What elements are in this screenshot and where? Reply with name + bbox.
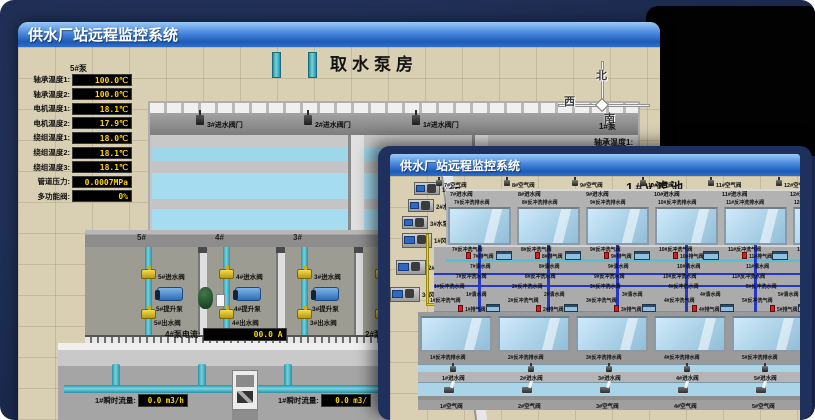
lift-pump-icon[interactable] (235, 287, 261, 301)
measurement-value: 18.0℃ (72, 132, 132, 144)
air-valve-icon[interactable] (504, 180, 510, 186)
filter-pool-top (586, 207, 649, 245)
intake-valve[interactable]: 1#进水阀门 (410, 117, 480, 137)
exhaust-valve-icon[interactable] (604, 252, 609, 259)
air-valve-icon[interactable] (444, 385, 456, 393)
clean-water-tank-icon (486, 304, 500, 312)
measurement-label: 绕组温度1: (22, 132, 70, 143)
air-valve-icon[interactable] (572, 180, 578, 186)
backwash-yellow-pipe-vertical (426, 234, 429, 306)
air-valve-label: 3#空气阀 (596, 402, 619, 410)
exhaust-valve-label: 11#排气阀 (749, 253, 772, 260)
air-valve-label: 9#空气阀 (580, 181, 603, 189)
measurement-value: 0.0007MPa (72, 176, 132, 188)
filter-pool-top (517, 207, 580, 245)
pump-current-readout: 4#泵电流: 00.0 A (165, 328, 287, 341)
pump-motor-icon (410, 202, 419, 209)
inlet-valve-label: 11#进水阀 (722, 190, 747, 198)
measurement-label: 绕组温度2: (22, 147, 70, 158)
clean-water-valve-label: 8#清水阀 (539, 263, 560, 270)
filter-pool-top (448, 207, 511, 245)
exhaust-valve-icon[interactable] (614, 305, 619, 312)
clean-water-valve-label: 5#清水阀 (778, 291, 799, 298)
inlet-valve-icon[interactable] (528, 366, 534, 372)
clean-water-tank-icon (642, 304, 656, 312)
intake-valve-label: 3#进水阀门 (207, 120, 243, 130)
exhaust-valve-icon[interactable] (770, 305, 775, 312)
backwash-water-valve-label: 8#反冲洗水阀 (525, 273, 556, 280)
pump5-panel-row: 多功能阀: 0% (22, 190, 134, 203)
exhaust-valve-label: 7#排气阀 (473, 253, 494, 260)
tank-icon[interactable] (198, 287, 213, 309)
flow-readout: 1#瞬时流量: 0.0 m3/ (278, 394, 371, 407)
drain-valve-label: 10#反冲洗排水阀 (658, 199, 696, 206)
pump-head-icon (427, 184, 436, 193)
filter-pool-bottom (654, 316, 726, 352)
measurement-value: 100.0℃ (72, 74, 132, 86)
pump-head-icon (421, 201, 430, 210)
front-window-inner: 供水厂站远程监控系统 1#V滤池 1#水泵 (390, 154, 800, 420)
clean-water-tank-icon (703, 251, 719, 260)
air-valve-icon[interactable] (708, 180, 714, 186)
filter-pool-bottom (420, 316, 492, 352)
exhaust-valve-icon[interactable] (742, 252, 747, 259)
inlet-valve-icon[interactable] (219, 269, 234, 279)
outlet-main-pipe (64, 385, 394, 393)
blower-motor-icon (404, 236, 415, 244)
outlet-valve-label: 5#出水阀 (154, 317, 181, 327)
outlet-valve-label: 3#出水阀 (310, 317, 337, 327)
backwash-water-valve-label: 5#反冲洗水阀 (746, 283, 777, 290)
pump5-panel-row: 电机温度1: 18.1℃ (22, 102, 134, 115)
measurement-value: 18.1℃ (72, 147, 132, 159)
drain-valve-label: 3#反冲洗排水阀 (586, 354, 622, 361)
flow-value: 0.0 m3/h (138, 394, 188, 407)
inlet-valve-label: 3#进水阀 (314, 271, 341, 281)
measurement-label: 绕组温度3: (22, 162, 70, 173)
pump-bay: 3#进水阀 3#提升泵 3#出水阀 (285, 247, 363, 335)
filter-pool-top (724, 207, 787, 245)
pump5-panel-row: 绕组温度3: 18.1℃ (22, 161, 134, 174)
intake-valve-label: 2#进水阀门 (315, 120, 351, 130)
inlet-valve-label: 7#进水阀 (450, 190, 473, 198)
riser-pipe (272, 52, 281, 78)
pump5-panel-row: 电机温度2: 17.9℃ (22, 117, 134, 130)
intake-valve-label: 1#进水阀门 (423, 120, 459, 130)
flow-label: 1#瞬时流量: (278, 395, 319, 406)
clean-water-valve-label: 7#清水阀 (470, 263, 491, 270)
clean-water-valve-label: 3#清水阀 (622, 291, 643, 298)
backwash-water-valve-label: 9#反冲洗水阀 (594, 273, 625, 280)
clean-water-valve-label: 10#清水阀 (677, 263, 700, 270)
backwash-water-valve-label: 10#反冲洗水阀 (663, 273, 696, 280)
drain-valve-label: 4#反冲洗排水阀 (664, 354, 700, 361)
air-valve-label: 5#空气阀 (752, 402, 775, 410)
measurement-label: 轴承温度2: (22, 89, 70, 100)
measurement-value: 18.1℃ (72, 103, 132, 115)
backwash-air-valve-label: 12#反冲洗气阀 (797, 246, 800, 253)
clean-water-tank-icon (564, 304, 578, 312)
front-window-titlebar[interactable]: 供水厂站远程监控系统 (390, 154, 800, 176)
air-valve-label: 4#空气阀 (674, 402, 697, 410)
clean-water-tank-icon (798, 304, 800, 312)
backwash-air-valve-label: 5#反冲洗气阀 (742, 297, 773, 304)
drain-valve-label: 8#反冲洗排水阀 (522, 199, 558, 206)
backwash-water-valve-label: 11#反冲洗水阀 (732, 273, 765, 280)
riser-pipe (308, 52, 317, 78)
inlet-valve-icon[interactable] (297, 269, 312, 279)
measurement-value: 17.9℃ (72, 117, 132, 129)
flow-meter[interactable] (232, 370, 258, 410)
air-valve-label: 8#空气阀 (512, 181, 535, 189)
filter-pool-top (793, 207, 800, 245)
room-title: 取水泵房 (330, 50, 418, 75)
measurement-label: 多功能阀: (22, 191, 70, 202)
bay-divider-wall (354, 247, 363, 335)
clean-water-valve-label: 1#清水阀 (466, 291, 487, 298)
exhaust-valve-icon[interactable] (673, 252, 678, 259)
outlet-valve-label: 4#出水阀 (232, 317, 259, 327)
measurement-label: 电机温度2: (22, 118, 70, 129)
intake-valve[interactable]: 3#进水阀门 (194, 117, 264, 137)
inlet-valve-icon[interactable] (762, 366, 768, 372)
exhaust-valve-icon[interactable] (466, 252, 471, 259)
exhaust-valve-icon[interactable] (536, 305, 541, 312)
exhaust-valve-icon[interactable] (692, 305, 697, 312)
air-valve-label: 7#空气阀 (444, 181, 467, 189)
drain-valve-label: 1#反冲洗排水阀 (430, 354, 466, 361)
bay-divider-wall (276, 247, 285, 335)
measurement-label: 管道压力: (22, 176, 70, 187)
inlet-valve-label: 9#进水阀 (586, 190, 609, 198)
backwash-air-valve-label: 4#反冲洗气阀 (664, 297, 695, 304)
backwash-air-valve-label: 2#反冲洗气阀 (508, 297, 539, 304)
clean-water-tank-icon (634, 251, 650, 260)
blower-head-icon (411, 262, 420, 271)
inlet-valve-icon[interactable] (606, 366, 612, 372)
blower-motor-icon (392, 290, 403, 298)
air-valve-label: 1#空气阀 (440, 402, 463, 410)
valve-icon[interactable] (304, 115, 312, 125)
pump5-panel-row: 轴承温度2: 100.0℃ (22, 88, 134, 101)
front-window-content: 1#V滤池 1#水泵 (390, 176, 800, 420)
pump5-panel-row: 管道压力: 0.0007MPa (22, 175, 134, 188)
lift-pump-label: 3#提升泵 (312, 303, 339, 313)
measurement-value: 0% (72, 190, 132, 202)
bay-pipe (223, 247, 230, 335)
backwash-water-valve-label: 3#反冲洗水阀 (590, 283, 621, 290)
inlet-valve-icon[interactable] (141, 269, 156, 279)
drain-valve-label: 2#反冲洗排水阀 (508, 354, 544, 361)
inlet-valve-label: 10#进水阀 (654, 190, 680, 198)
backwash-water-valve-label: 2#反冲洗水阀 (512, 283, 543, 290)
compass-north: 北 (596, 67, 607, 83)
pump-current-label: 4#泵电流: (165, 329, 201, 340)
bay-number: 3# (293, 233, 302, 242)
clean-water-valve-label: 11#清水阀 (746, 263, 769, 270)
backwash-air-valve-label: 1#反冲洗气阀 (430, 297, 461, 304)
pump-head-icon (415, 218, 424, 227)
measurement-label: 电机温度1: (22, 103, 70, 114)
front-window-title: 供水厂站远程监控系统 (400, 157, 520, 174)
backwash-water-valve-label: 4#反冲洗水阀 (668, 283, 699, 290)
flow-label: 1#瞬时流量: (95, 395, 136, 406)
pump1-panel-header: 1#泵 (599, 121, 616, 132)
flow-readout: 1#瞬时流量: 0.0 m3/h (95, 394, 188, 407)
inlet-valve-label: 4#进水阀 (236, 271, 263, 281)
blower-motor-icon (398, 263, 409, 271)
drain-valve-label: 5#反冲洗排水阀 (742, 354, 778, 361)
exhaust-valve-label: 9#排气阀 (611, 253, 632, 260)
intake-valve[interactable]: 2#进水阀门 (302, 117, 372, 137)
inlet-valve-label: 5#进水阀 (158, 271, 185, 281)
valve-icon[interactable] (196, 115, 204, 125)
filter-pool-bottom (498, 316, 570, 352)
inlet-valve-label: 12#进水阀 (790, 190, 800, 198)
clean-water-tank-icon (772, 251, 788, 260)
scada-desktop: 供水厂站远程监控系统 取水泵房 (0, 0, 815, 420)
exhaust-valve-label: 8#排气阀 (542, 253, 563, 260)
background-panel (646, 6, 815, 156)
filter-pool-top (655, 207, 718, 245)
drain-valve-label: 9#反冲洗排水阀 (590, 199, 626, 206)
backwash-water-valve-label: 7#反冲洗水阀 (456, 273, 487, 280)
air-valve-icon[interactable] (756, 385, 768, 393)
back-window-title: 供水厂站远程监控系统 (28, 24, 178, 45)
lift-pump-icon[interactable] (157, 287, 183, 301)
compass-west: 西 (564, 93, 575, 109)
measurement-value: 18.1℃ (72, 161, 132, 173)
lift-pump-label: 4#提升泵 (234, 303, 261, 313)
air-valve-icon[interactable] (776, 180, 782, 186)
valve-icon[interactable] (412, 115, 420, 125)
air-valve-icon[interactable] (678, 385, 690, 393)
pump-motor-icon (404, 219, 413, 226)
pump-bay: 5#进水阀 5#提升泵 5#出水阀 (129, 247, 207, 335)
exhaust-valve-label: 10#排气阀 (680, 253, 703, 260)
drain-valve-label: 12#反冲洗排水阀 (794, 199, 800, 206)
inlet-valve-icon[interactable] (450, 366, 456, 372)
air-valve-label: 2#空气阀 (518, 402, 541, 410)
blower-head-icon (405, 289, 414, 298)
air-valve-label: 11#空气阀 (716, 181, 741, 189)
inlet-valve-label: 8#进水阀 (518, 190, 541, 198)
backwash-air-valve-label: 3#反冲洗气阀 (586, 297, 617, 304)
air-valve-label: 12#空气阀 (784, 181, 800, 189)
bay-number: 5# (137, 233, 146, 242)
air-valve-icon[interactable] (600, 385, 612, 393)
pump5-panel-row: 绕组温度2: 18.1℃ (22, 146, 134, 159)
clean-water-valve-label: 2#清水阀 (544, 291, 565, 298)
flow-meter-base (232, 410, 258, 420)
pump-room-back-wall (85, 230, 399, 247)
exhaust-valve-icon[interactable] (458, 305, 463, 312)
clean-water-tank-icon (496, 251, 512, 260)
inlet-valve-icon[interactable] (684, 366, 690, 372)
backwash-water-valve-label: 1#反冲洗水阀 (434, 283, 465, 290)
pump-motor-icon (416, 185, 425, 192)
measurement-value: 100.0℃ (72, 88, 132, 100)
pump5-panel-row: 轴承温度1: 100.0℃ (22, 73, 134, 86)
pump5-panel-row: 绕组温度1: 18.0℃ (22, 131, 134, 144)
measurement-label: 轴承温度1: (22, 74, 70, 85)
air-valve-label: 10#空气阀 (648, 181, 674, 189)
air-valve-icon[interactable] (522, 385, 534, 393)
pump-bay: 4#进水阀 4#提升泵 4#出水阀 (207, 247, 285, 335)
exhaust-valve-icon[interactable] (535, 252, 540, 259)
back-window-titlebar[interactable]: 供水厂站远程监控系统 (18, 22, 660, 47)
lift-pump-label: 5#提升泵 (156, 303, 183, 313)
filter-pool-bottom (576, 316, 648, 352)
bay-pipe (301, 247, 308, 335)
bay-number: 4# (215, 233, 224, 242)
clean-water-valve-label: 4#清水阀 (700, 291, 721, 298)
clean-water-tank-icon (720, 304, 734, 312)
control-box-icon[interactable] (216, 294, 225, 307)
drain-valve-label: 7#反冲洗排水阀 (454, 199, 490, 206)
front-window-filter-pool: 供水厂站远程监控系统 1#V滤池 1#水泵 (378, 146, 812, 420)
lift-pump-icon[interactable] (313, 287, 339, 301)
blower-head-icon (417, 235, 426, 244)
clean-water-valve-label: 9#清水阀 (608, 263, 629, 270)
drain-valve-label: 11#反冲洗排水阀 (726, 199, 764, 206)
air-valve-icon[interactable] (436, 180, 442, 186)
clean-water-tank-icon (565, 251, 581, 260)
pump-current-value: 00.0 A (203, 328, 287, 341)
filter-pool-bottom (732, 316, 800, 352)
bay-pipe (145, 247, 152, 335)
flow-value: 0.0 m3/ (321, 394, 371, 407)
air-valve-icon[interactable] (640, 180, 646, 186)
